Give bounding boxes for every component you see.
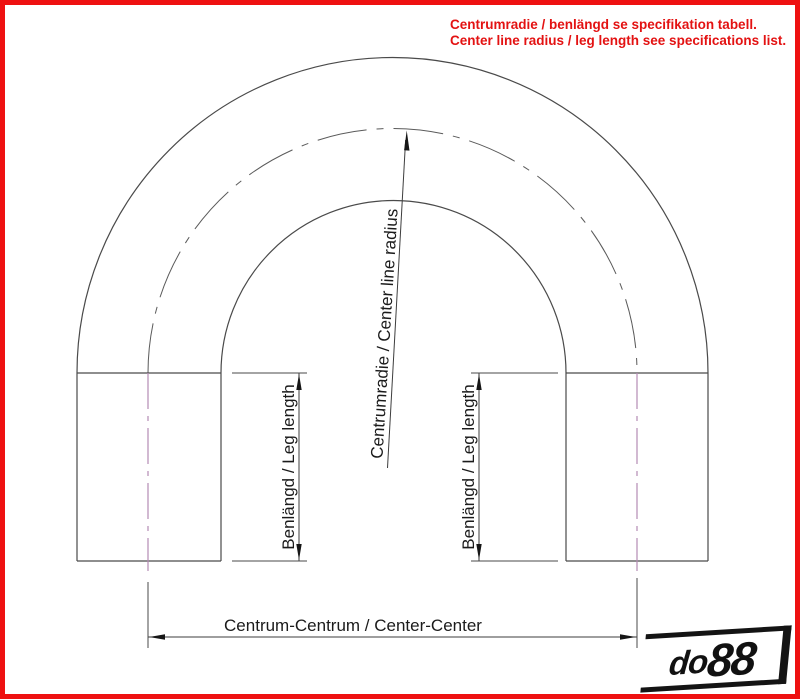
center-dim-left-arrow [149,634,165,639]
right-leg-extension-lines [471,373,558,561]
radius-arrow [404,131,409,151]
drawing-sheet: Centrumradie / benlängd se specifikation… [0,0,800,699]
center-center-label: Centrum-Centrum / Center-Center [224,616,482,635]
do88-logo-text-88: 88 [705,634,757,683]
center-line-radius-label: Centrumradie / Center line radius [367,208,401,459]
do88-logo: do88 [640,625,791,692]
left-leg-length-label: Benlängd / Leg length [279,384,298,549]
left-leg-outline [77,373,221,561]
center-dim-right-arrow [620,634,636,639]
pipe-bend-drawing: Benlängd / Leg length Benlängd / Leg len… [5,5,795,694]
do88-logo-text-do: do [667,639,710,686]
right-leg-length-label: Benlängd / Leg length [459,384,478,549]
